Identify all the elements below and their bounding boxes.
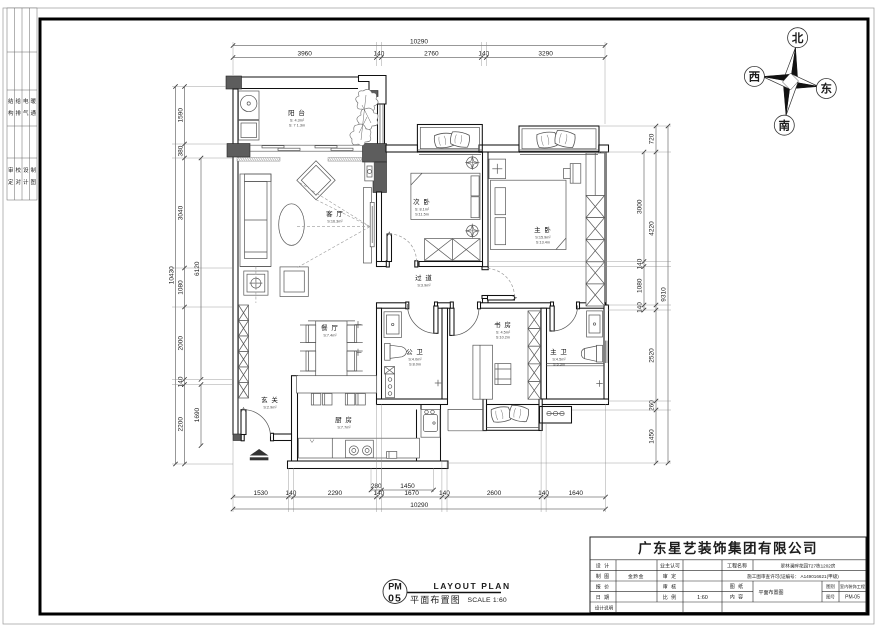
svg-text:S:4.5m²: S:4.5m²: [552, 358, 566, 362]
svg-text:过 道: 过 道: [415, 273, 433, 282]
svg-text:公 卫: 公 卫: [406, 348, 424, 356]
svg-text:比 例: 比 例: [663, 594, 677, 601]
svg-text:1670: 1670: [404, 490, 419, 497]
svg-text:3040: 3040: [177, 205, 184, 220]
svg-text:140: 140: [636, 258, 643, 269]
svg-text:气: 气: [23, 109, 29, 117]
svg-text:4220: 4220: [648, 221, 655, 236]
svg-text:报 价: 报 价: [596, 584, 610, 591]
svg-text:1450: 1450: [648, 429, 655, 444]
svg-text:审: 审: [8, 166, 14, 174]
svg-text:南: 南: [779, 118, 791, 132]
svg-text:S:16.3m²: S:16.3m²: [327, 220, 343, 224]
svg-text:140: 140: [373, 50, 384, 57]
svg-text:3000: 3000: [636, 199, 643, 214]
svg-text:S:10.2m: S:10.2m: [496, 336, 510, 340]
svg-text:S:6.3m: S:6.3m: [553, 363, 565, 367]
svg-text:1640: 1640: [569, 490, 584, 497]
svg-text:S: 4.5m²: S: 4.5m²: [496, 331, 511, 335]
svg-text:次 卧: 次 卧: [413, 197, 431, 206]
svg-text:1690: 1690: [194, 407, 201, 422]
svg-text:6120: 6120: [194, 261, 201, 276]
svg-text:140: 140: [177, 376, 184, 387]
svg-text:1530: 1530: [253, 490, 268, 497]
svg-text:施工图审查许可(证编号： A149016621(甲级): 施工图审查许可(证编号： A149016621(甲级): [747, 573, 839, 580]
svg-text:结: 结: [8, 97, 14, 105]
svg-text:设计说明: 设计说明: [595, 605, 614, 612]
svg-text:380: 380: [177, 145, 184, 156]
svg-text:S: 4.3m²: S: 4.3m²: [290, 119, 305, 123]
svg-text:2600: 2600: [487, 490, 502, 497]
svg-text:图 纸: 图 纸: [730, 583, 744, 590]
svg-text:给: 给: [16, 97, 22, 105]
svg-text:S:4.0m²: S:4.0m²: [408, 358, 422, 362]
svg-text:10290: 10290: [410, 38, 428, 45]
svg-text:计: 计: [23, 178, 29, 186]
svg-text:140: 140: [636, 302, 643, 313]
svg-text:金黔金: 金黔金: [628, 573, 644, 580]
svg-text:制: 制: [31, 166, 37, 174]
svg-text:S:15.9m²: S:15.9m²: [535, 236, 551, 240]
svg-text:翠林澜畔花园T27栋1202房: 翠林澜畔花园T27栋1202房: [781, 563, 836, 570]
svg-text:1450: 1450: [400, 483, 415, 490]
svg-text:S:8.0m: S:8.0m: [409, 363, 421, 367]
svg-text:LAYOUT PLAN: LAYOUT PLAN: [434, 581, 511, 591]
svg-text:日 期: 日 期: [596, 595, 610, 601]
svg-text:设 计: 设 计: [596, 563, 610, 570]
svg-text:1080: 1080: [636, 278, 643, 293]
svg-text:S: 7 1.3m: S: 7 1.3m: [289, 124, 305, 128]
svg-text:SCALE 1:60: SCALE 1:60: [468, 597, 507, 604]
svg-text:10290: 10290: [410, 502, 428, 509]
svg-text:2520: 2520: [648, 348, 655, 363]
svg-text:定: 定: [8, 178, 14, 186]
svg-text:140: 140: [538, 490, 549, 497]
svg-text:05: 05: [388, 593, 402, 605]
svg-text:西: 西: [749, 71, 761, 84]
svg-text:1:60: 1:60: [697, 595, 708, 601]
svg-text:S:3.9m²: S:3.9m²: [417, 284, 431, 288]
svg-text:制 图: 制 图: [596, 573, 610, 580]
svg-text:校: 校: [16, 166, 22, 174]
svg-text:排: 排: [16, 109, 22, 117]
svg-text:140: 140: [439, 490, 450, 497]
svg-text:电: 电: [23, 97, 29, 105]
svg-text:主 卫: 主 卫: [550, 347, 568, 356]
svg-text:审 核: 审 核: [663, 584, 677, 591]
svg-text:2200: 2200: [177, 417, 184, 432]
svg-text:对: 对: [16, 178, 22, 186]
svg-text:720: 720: [648, 133, 655, 144]
svg-text:广东星艺装饰集团有限公司: 广东星艺装饰集团有限公司: [638, 540, 818, 556]
svg-text:主 卧: 主 卧: [534, 225, 552, 234]
svg-text:工程名称: 工程名称: [727, 563, 747, 570]
svg-text:平面布置图: 平面布置图: [758, 589, 783, 596]
svg-text:餐 厅: 餐 厅: [321, 323, 339, 332]
svg-text:PM: PM: [388, 581, 402, 591]
svg-text:260: 260: [648, 400, 655, 411]
svg-text:暖: 暖: [31, 97, 37, 105]
svg-text:业主认可: 业主认可: [660, 563, 680, 570]
svg-text:3290: 3290: [538, 50, 553, 57]
svg-text:玄 关: 玄 关: [261, 395, 279, 404]
svg-text:审 定: 审 定: [663, 573, 677, 580]
svg-text:140: 140: [373, 490, 384, 497]
svg-text:平面布置图: 平面布置图: [410, 594, 461, 605]
svg-text:S:13.4m: S:13.4m: [536, 241, 550, 245]
svg-text:图别: 图别: [826, 583, 835, 590]
svg-text:3960: 3960: [297, 50, 312, 57]
svg-text:S: 8.1m²: S: 8.1m²: [415, 208, 430, 212]
svg-text:构: 构: [8, 109, 14, 117]
svg-text:厨 房: 厨 房: [335, 415, 353, 424]
svg-text:S:7.7m²: S:7.7m²: [337, 426, 351, 430]
svg-text:书 房: 书 房: [494, 320, 512, 329]
svg-text:2290: 2290: [328, 490, 343, 497]
svg-text:10430: 10430: [168, 266, 175, 284]
svg-text:S:2.9m²: S:2.9m²: [263, 406, 277, 410]
svg-text:S:7.4m²: S:7.4m²: [323, 334, 337, 338]
svg-text:阳 台: 阳 台: [288, 108, 306, 117]
svg-text:PM-05: PM-05: [845, 595, 860, 601]
svg-text:室内装饰工程: 室内装饰工程: [840, 583, 866, 590]
svg-text:内 容: 内 容: [730, 594, 744, 601]
svg-text:140: 140: [286, 490, 297, 497]
svg-text:1590: 1590: [177, 108, 184, 123]
svg-text:9310: 9310: [660, 287, 667, 302]
svg-text:2760: 2760: [424, 50, 439, 57]
svg-text:设: 设: [23, 166, 29, 174]
svg-text:140: 140: [478, 50, 489, 57]
svg-text:通: 通: [31, 109, 37, 117]
svg-text:客 厅: 客 厅: [326, 209, 344, 218]
svg-text:2000: 2000: [177, 336, 184, 351]
svg-text:北: 北: [792, 31, 804, 45]
svg-text:图: 图: [31, 178, 37, 186]
svg-text:东: 东: [821, 82, 833, 96]
svg-text:1080: 1080: [177, 280, 184, 295]
svg-text:S:11.5m: S:11.5m: [415, 213, 429, 217]
